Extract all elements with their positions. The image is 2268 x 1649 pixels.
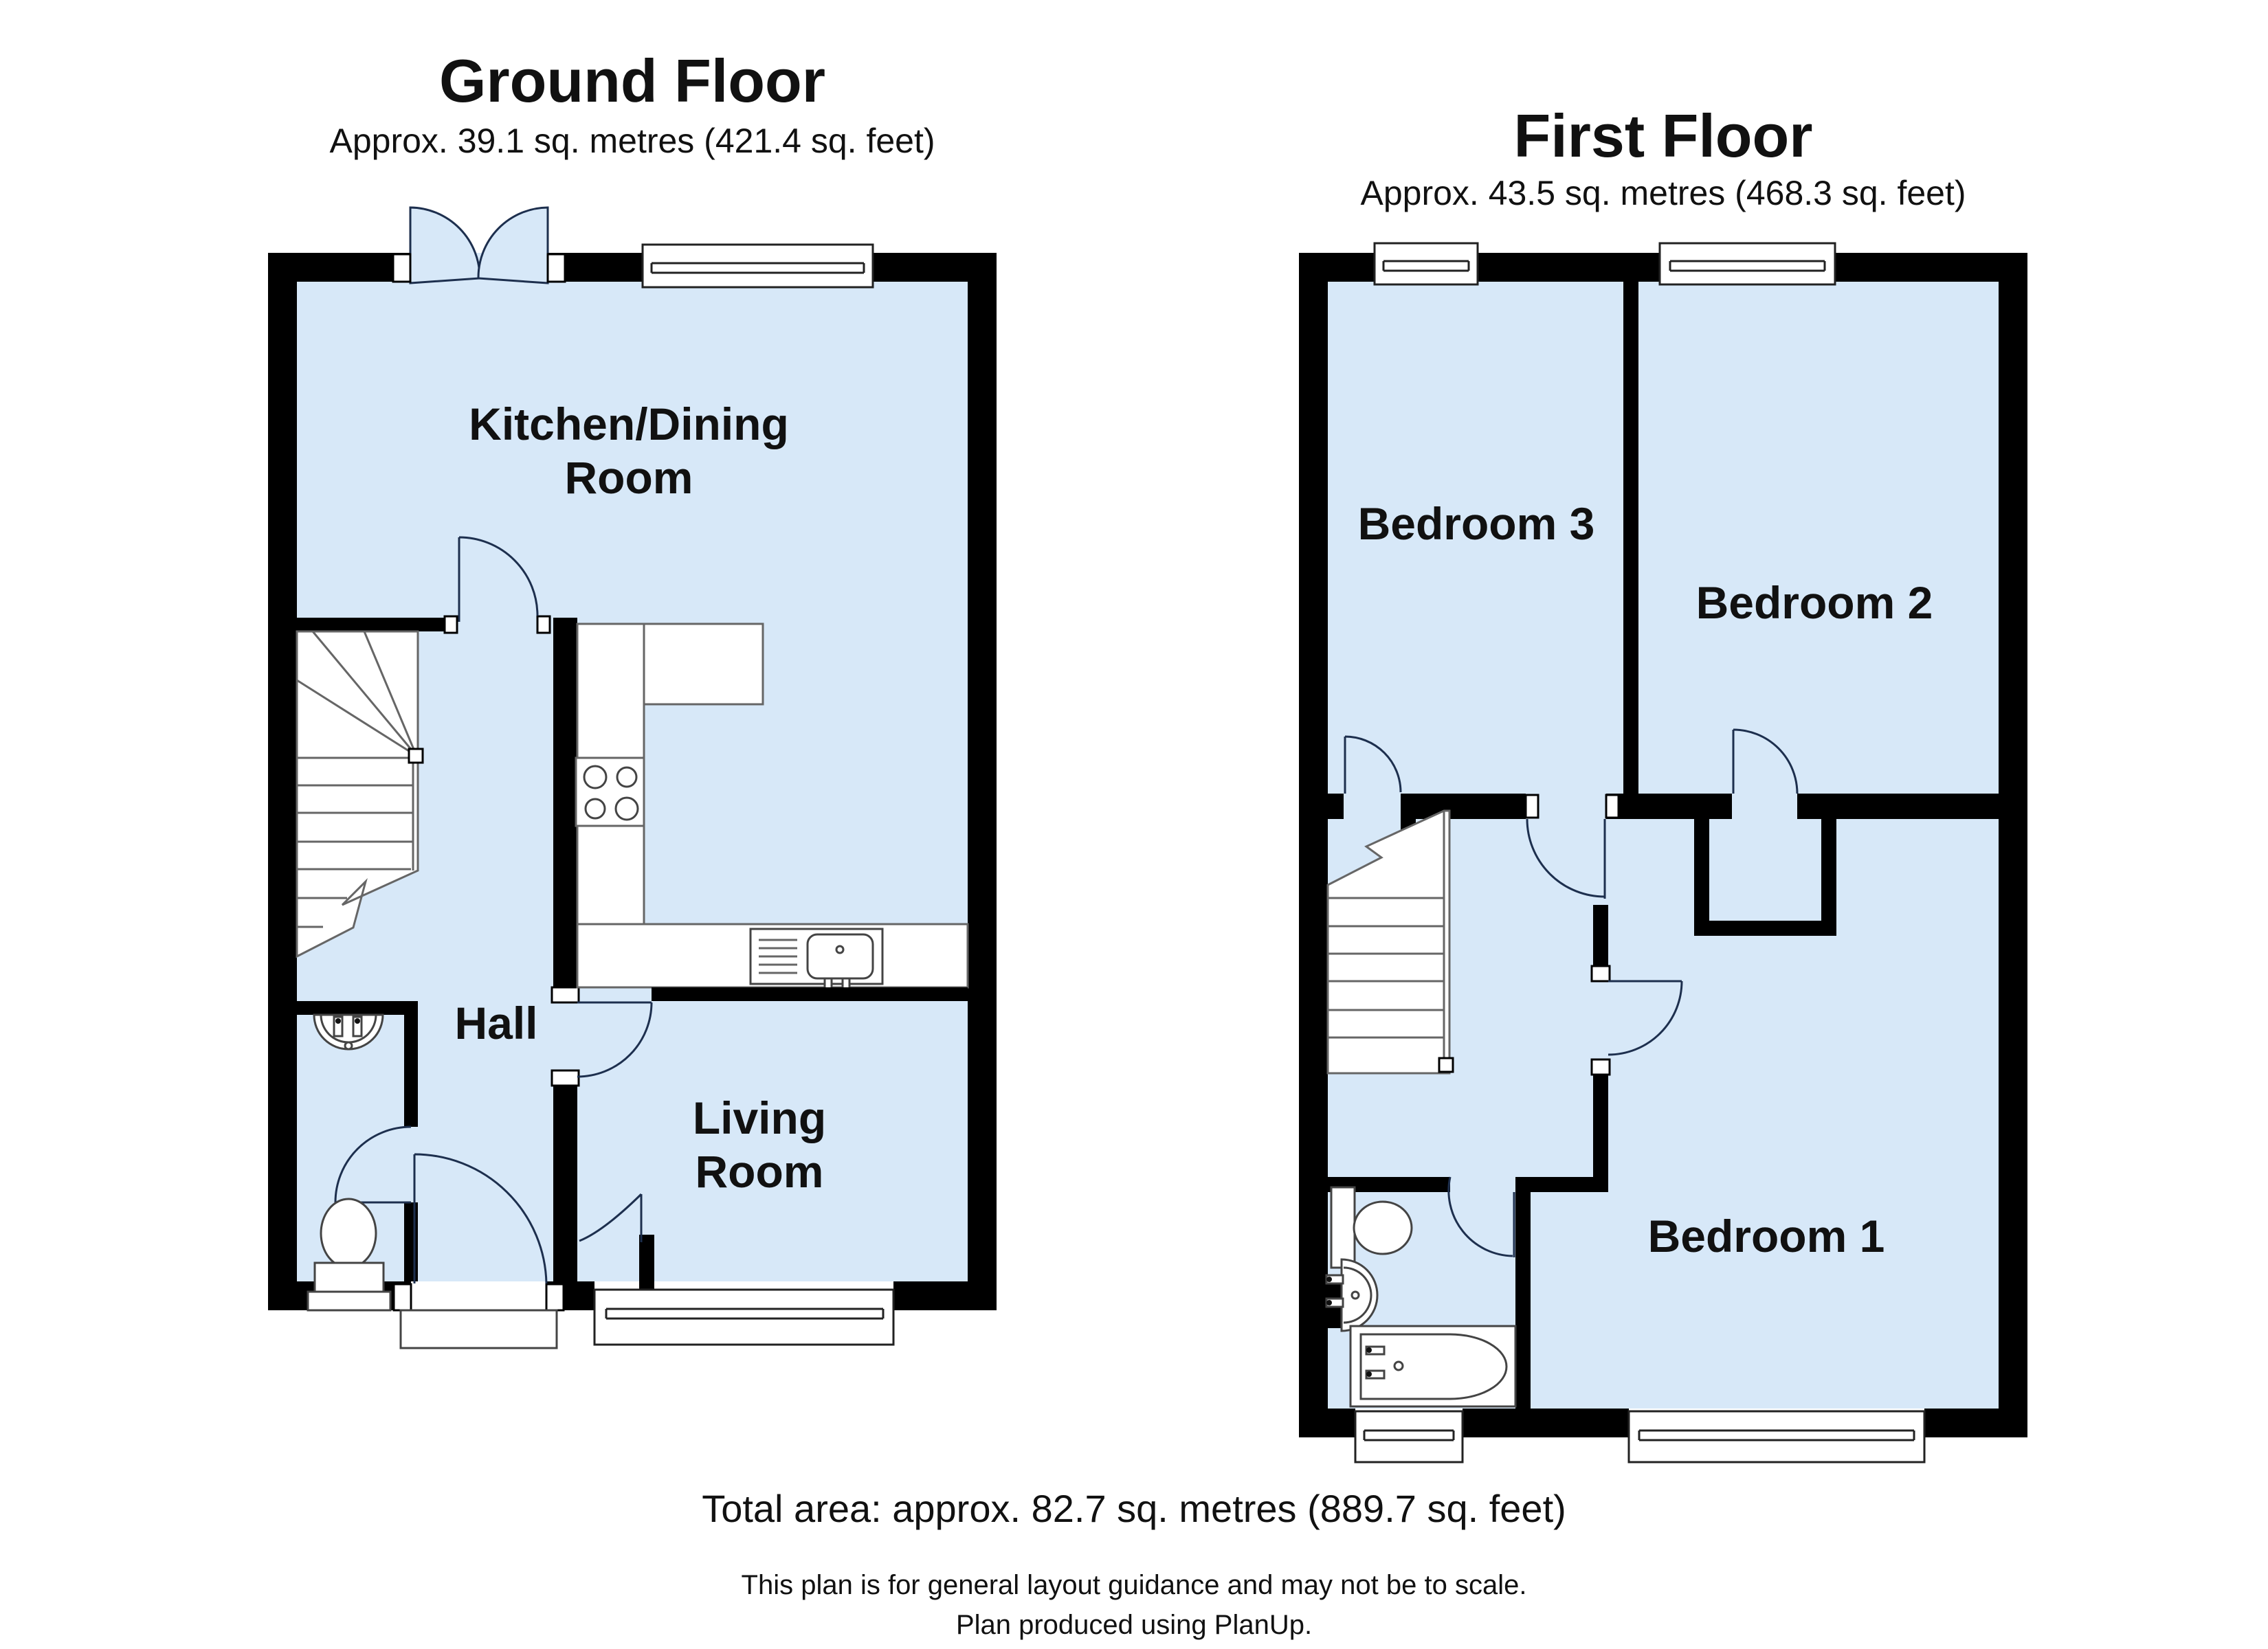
kitchen-dining-label-line1: Kitchen/Dining (469, 399, 789, 449)
kitchen-sink (751, 929, 882, 994)
first-floor-plan: Bedroom 3 Bedroom 2 Bedroom 1 (1299, 243, 2027, 1462)
disclaimer-text: This plan is for general layout guidance… (742, 1570, 1527, 1600)
living-room-window (594, 1290, 893, 1345)
bed3-bed2-wall (1623, 282, 1638, 819)
living-room-label-line1: Living (693, 1092, 826, 1143)
bedroom2-label: Bedroom 2 (1696, 577, 1933, 628)
bedroom1-window (1629, 1411, 1924, 1462)
bedroom2-window (1660, 243, 1835, 284)
door-jamb (548, 254, 565, 282)
bedroom3-label: Bedroom 3 (1358, 498, 1595, 549)
first-floor-title: First Floor (1513, 102, 1812, 170)
living-room-label-line2: Room (696, 1146, 824, 1197)
french-doors (410, 207, 548, 284)
bedroom1-label: Bedroom 1 (1648, 1211, 1885, 1261)
credit-text: Plan produced using PlanUp. (956, 1610, 1312, 1640)
kitchen-window (643, 245, 873, 287)
bathroom-window (1355, 1411, 1463, 1462)
kitchen-dining-label-line2: Room (565, 452, 693, 503)
porch-step (401, 1310, 557, 1348)
kitchen-living-wall (652, 987, 968, 1001)
bedroom3-window (1375, 243, 1478, 284)
ground-floor-title: Ground Floor (439, 47, 825, 115)
total-area-text: Total area: approx. 82.7 sq. metres (889… (702, 1487, 1566, 1530)
bath (1350, 1326, 1515, 1406)
ground-floor-area-text: Approx. 39.1 sq. metres (421.4 sq. feet) (329, 122, 935, 160)
first-floor-area-text: Approx. 43.5 sq. metres (468.3 sq. feet) (1360, 174, 1966, 212)
bedrooms-bottom-wall (1328, 794, 1999, 819)
hall-label: Hall (454, 998, 537, 1048)
hob (576, 758, 644, 826)
door-jamb (393, 254, 410, 282)
ground-floor-plan: Kitchen/Dining Room Hall Living Room (268, 207, 997, 1348)
